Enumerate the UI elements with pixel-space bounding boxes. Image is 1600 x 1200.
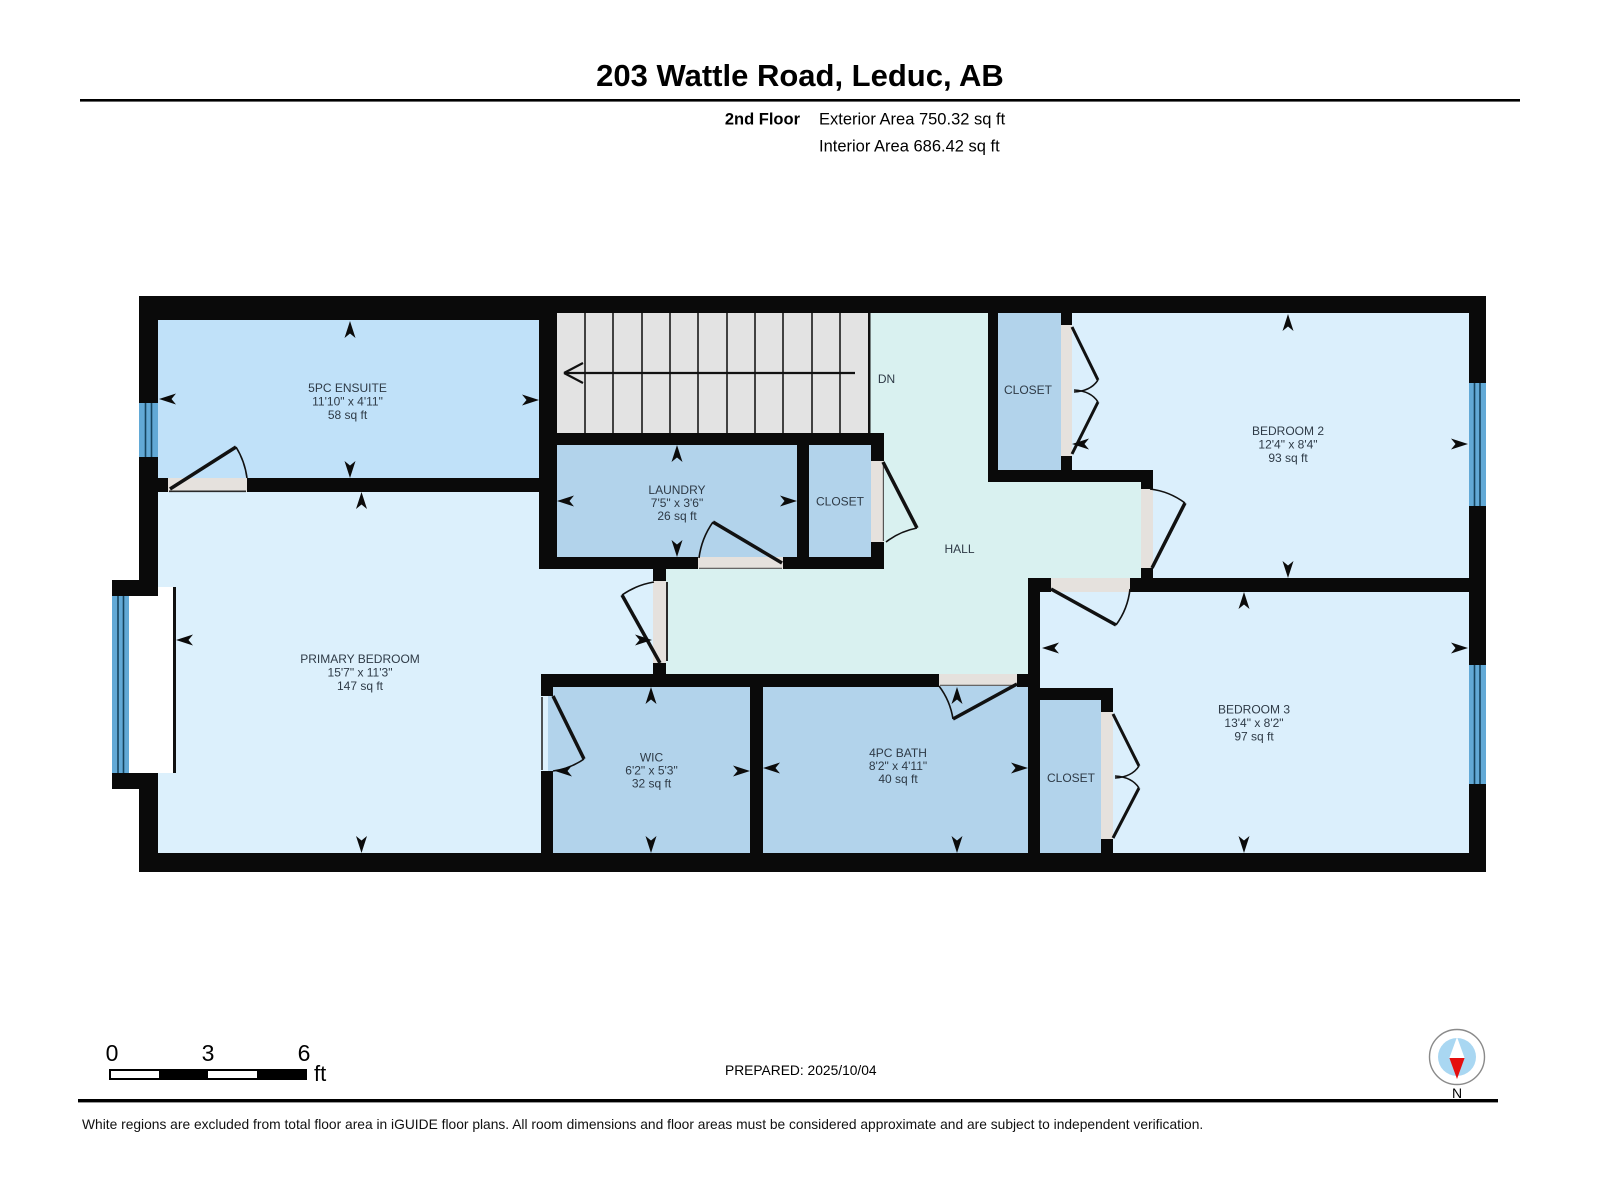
svg-text:147 sq ft: 147 sq ft [337, 679, 384, 693]
svg-text:PRIMARY BEDROOM: PRIMARY BEDROOM [300, 652, 420, 666]
svg-text:6'2" x 5'3": 6'2" x 5'3" [625, 764, 677, 778]
svg-text:PREPARED: 2025/10/04: PREPARED: 2025/10/04 [725, 1063, 877, 1078]
svg-text:15'7" x 11'3": 15'7" x 11'3" [328, 666, 393, 680]
svg-text:4PC BATH: 4PC BATH [869, 746, 927, 760]
svg-text:CLOSET: CLOSET [816, 495, 865, 509]
svg-text:3: 3 [202, 1040, 215, 1066]
svg-text:0: 0 [106, 1040, 119, 1066]
svg-text:13'4" x 8'2": 13'4" x 8'2" [1224, 716, 1283, 730]
svg-text:5PC ENSUITE: 5PC ENSUITE [308, 381, 387, 395]
svg-text:LAUNDRY: LAUNDRY [648, 483, 705, 497]
svg-text:93 sq ft: 93 sq ft [1268, 451, 1308, 465]
svg-text:N: N [1452, 1085, 1462, 1101]
svg-text:7'5" x 3'6": 7'5" x 3'6" [651, 496, 703, 510]
svg-text:26 sq ft: 26 sq ft [657, 509, 697, 523]
svg-text:Exterior Area 750.32 sq ft: Exterior Area 750.32 sq ft [819, 111, 1006, 129]
svg-text:BEDROOM 3: BEDROOM 3 [1218, 703, 1290, 717]
svg-text:58 sq ft: 58 sq ft [328, 408, 368, 422]
svg-text:CLOSET: CLOSET [1004, 383, 1053, 397]
svg-text:BEDROOM 2: BEDROOM 2 [1252, 424, 1324, 438]
svg-text:DN: DN [878, 372, 895, 386]
svg-text:6: 6 [298, 1040, 311, 1066]
svg-text:40 sq ft: 40 sq ft [878, 772, 918, 786]
svg-text:12'4" x 8'4": 12'4" x 8'4" [1258, 438, 1317, 452]
svg-text:Interior Area 686.42 sq ft: Interior Area 686.42 sq ft [819, 138, 1000, 156]
svg-text:CLOSET: CLOSET [1047, 771, 1096, 785]
svg-text:HALL: HALL [944, 542, 974, 556]
svg-text:203 Wattle Road, Leduc, AB: 203 Wattle Road, Leduc, AB [596, 58, 1004, 93]
svg-text:32 sq ft: 32 sq ft [632, 777, 672, 791]
svg-text:White regions are excluded fro: White regions are excluded from total fl… [82, 1117, 1203, 1132]
svg-text:WIC: WIC [640, 751, 664, 765]
svg-text:97 sq ft: 97 sq ft [1234, 730, 1274, 744]
svg-text:8'2" x 4'11": 8'2" x 4'11" [869, 759, 927, 773]
svg-text:2nd Floor: 2nd Floor [725, 111, 801, 129]
svg-text:11'10" x 4'11": 11'10" x 4'11" [312, 395, 383, 409]
svg-text:ft: ft [314, 1061, 326, 1086]
